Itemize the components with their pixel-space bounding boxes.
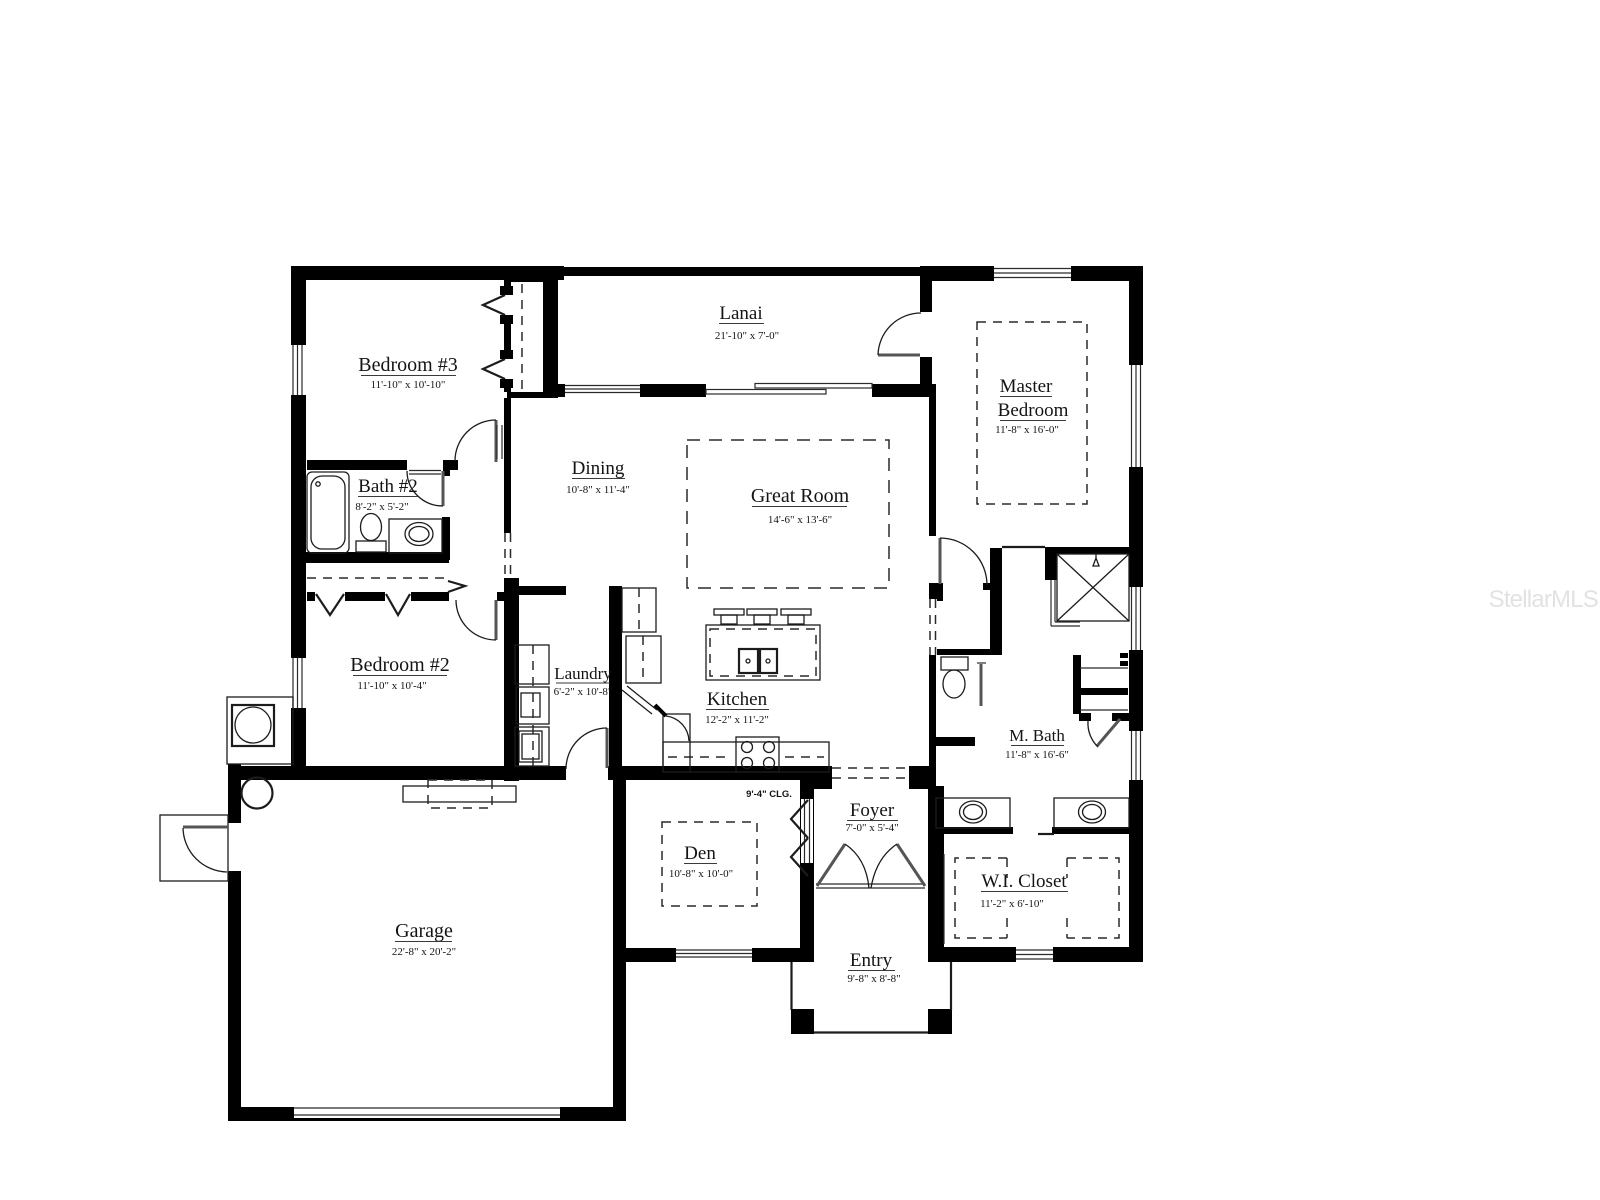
- svg-text:6'-2" x 10'-8": 6'-2" x 10'-8": [554, 686, 613, 698]
- svg-text:11'-8" x 16'-0": 11'-8" x 16'-0": [995, 424, 1059, 436]
- svg-text:M. Bath: M. Bath: [1009, 726, 1065, 745]
- svg-text:9'-4" CLG.: 9'-4" CLG.: [746, 789, 792, 800]
- svg-text:11'-10" x 10'-4": 11'-10" x 10'-4": [357, 680, 426, 692]
- svg-text:Bedroom #3: Bedroom #3: [358, 354, 457, 376]
- svg-text:Foyer: Foyer: [850, 800, 895, 821]
- svg-text:Entry: Entry: [850, 950, 893, 971]
- svg-text:21'-10" x 7'-0": 21'-10" x 7'-0": [715, 330, 779, 342]
- svg-text:Master: Master: [1000, 376, 1053, 397]
- svg-text:7'-0" x 5'-4": 7'-0" x 5'-4": [845, 822, 898, 834]
- svg-text:Lanai: Lanai: [719, 303, 762, 324]
- svg-text:12'-2" x 11'-2": 12'-2" x 11'-2": [705, 714, 769, 726]
- svg-text:14'-6" x 13'-6": 14'-6" x 13'-6": [768, 514, 832, 526]
- svg-text:11'-10" x 10'-10": 11'-10" x 10'-10": [371, 379, 446, 391]
- svg-text:Garage: Garage: [395, 920, 453, 942]
- svg-text:W.I. Closet: W.I. Closet: [981, 871, 1067, 892]
- svg-text:10'-8" x 10'-0": 10'-8" x 10'-0": [669, 868, 733, 880]
- svg-text:Kitchen: Kitchen: [707, 689, 768, 710]
- svg-text:Den: Den: [684, 843, 716, 864]
- svg-text:Bath #2: Bath #2: [358, 476, 418, 497]
- svg-text:22'-8" x 20'-2": 22'-8" x 20'-2": [392, 946, 456, 958]
- svg-text:Great Room: Great Room: [751, 485, 850, 507]
- svg-text:Bedroom: Bedroom: [998, 400, 1069, 421]
- svg-text:Bedroom #2: Bedroom #2: [350, 654, 449, 676]
- svg-text:11'-8" x 16'-6": 11'-8" x 16'-6": [1005, 749, 1069, 761]
- svg-text:Dining: Dining: [572, 458, 625, 479]
- svg-text:Laundry: Laundry: [554, 664, 612, 683]
- svg-text:9'-8" x 8'-8": 9'-8" x 8'-8": [847, 973, 900, 985]
- svg-text:11'-2" x 6'-10": 11'-2" x 6'-10": [980, 898, 1044, 910]
- svg-text:8'-2" x 5'-2": 8'-2" x 5'-2": [355, 501, 408, 513]
- svg-text:10'-8" x 11'-4": 10'-8" x 11'-4": [566, 484, 630, 496]
- svg-text:StellarMLS: StellarMLS: [1489, 586, 1598, 613]
